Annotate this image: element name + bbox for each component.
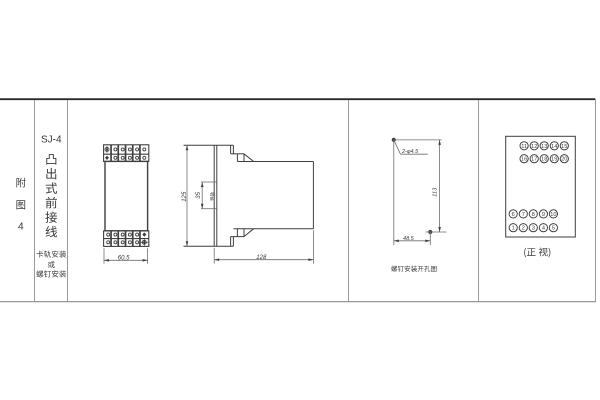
- svg-text:9: 9: [542, 212, 545, 218]
- svg-text:2-φ4.5: 2-φ4.5: [401, 149, 419, 155]
- svg-text:16: 16: [521, 157, 527, 163]
- svg-text:6: 6: [512, 212, 515, 218]
- svg-text:4: 4: [18, 221, 24, 233]
- svg-text:18: 18: [541, 157, 547, 163]
- svg-text:128: 128: [256, 255, 267, 261]
- svg-text:10: 10: [550, 212, 556, 218]
- svg-text:15: 15: [561, 144, 567, 150]
- svg-text:14: 14: [551, 144, 557, 150]
- svg-text:17: 17: [531, 157, 537, 163]
- svg-text:8: 8: [532, 212, 535, 218]
- svg-text:2: 2: [522, 226, 525, 232]
- svg-text:3: 3: [532, 226, 535, 232]
- svg-text:11: 11: [521, 144, 527, 150]
- svg-text:7: 7: [522, 212, 525, 218]
- svg-text:60.5: 60.5: [118, 255, 130, 261]
- svg-text:5: 5: [552, 226, 555, 232]
- svg-text:SJ-4: SJ-4: [41, 134, 62, 145]
- svg-text:12: 12: [531, 144, 537, 150]
- svg-text:19: 19: [551, 157, 557, 163]
- svg-text:4: 4: [542, 226, 545, 232]
- svg-text:35: 35: [196, 191, 202, 198]
- svg-text:113: 113: [432, 187, 438, 197]
- svg-text:20: 20: [561, 157, 567, 163]
- svg-text:48.5: 48.5: [403, 236, 415, 242]
- svg-text:1: 1: [512, 226, 515, 232]
- svg-text:13: 13: [541, 144, 547, 150]
- svg-text:125: 125: [182, 191, 188, 202]
